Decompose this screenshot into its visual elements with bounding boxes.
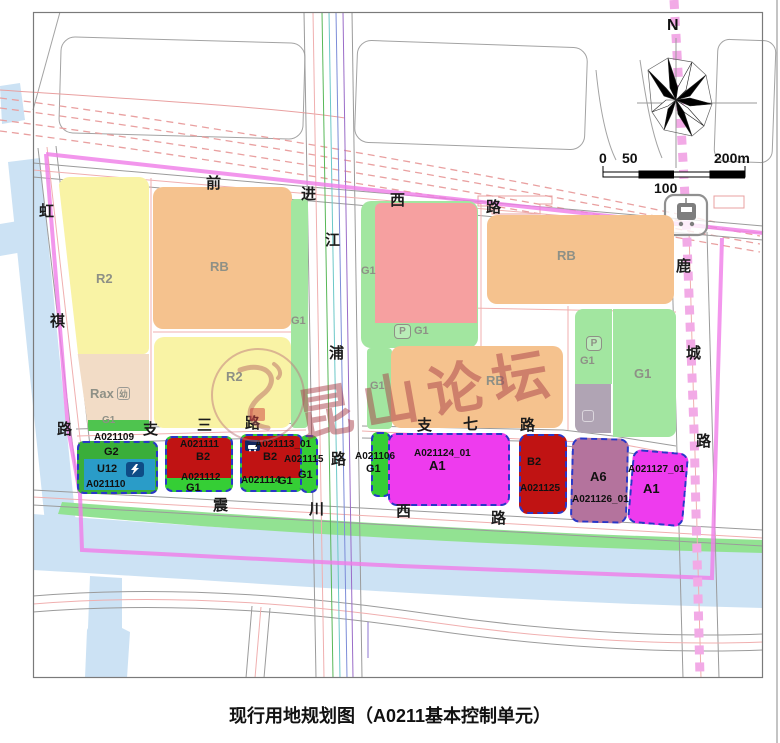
road-label-hongqi: 虹 bbox=[39, 204, 54, 219]
parcel-rax-g1-strip bbox=[88, 420, 149, 431]
parcel-use-label: B2 bbox=[196, 452, 210, 463]
parcel-code: A021114 bbox=[241, 476, 281, 486]
parcel-use-label: A1 bbox=[643, 482, 660, 495]
map-title: 现行用地规划图（A0211基本控制单元） bbox=[0, 702, 780, 728]
parking-icon: P bbox=[586, 336, 602, 351]
road-label-lucheng: 鹿 bbox=[676, 259, 691, 274]
parcel-use-label: G1 bbox=[370, 381, 385, 392]
scale-tick-200m: 200m bbox=[714, 151, 750, 165]
parcel-code: A021125 bbox=[520, 484, 560, 494]
road-label-zhisan: 路 bbox=[245, 416, 260, 431]
parcel-salmon-inner bbox=[375, 203, 477, 323]
scale-bar bbox=[603, 166, 745, 179]
parcel-use-label: R2 bbox=[226, 370, 243, 383]
road-label-hongqi: 路 bbox=[57, 422, 72, 437]
scale-tick-0: 0 bbox=[599, 151, 607, 165]
road-label-hongqi: 祺 bbox=[50, 314, 65, 329]
parcel-use-label: G1 bbox=[102, 416, 115, 426]
parcel-b2-a021125 bbox=[519, 434, 567, 514]
road-label-zhenchuan: 西 bbox=[396, 504, 411, 519]
parcel-code: A021109 bbox=[94, 433, 134, 443]
power-substation-icon bbox=[126, 462, 144, 477]
parcel-a1-a021124 bbox=[388, 433, 510, 506]
road-label-lucheng: 城 bbox=[686, 346, 701, 361]
kindergarten-icon: 幼 bbox=[117, 387, 130, 400]
parcel-use-label: G1 bbox=[278, 476, 293, 487]
road-label-qianjin: 西 bbox=[390, 193, 405, 208]
parcel-use-label: Rax bbox=[90, 387, 114, 400]
land-use-planning-map: P P 幼 A021109 A021110 A021111 A021112 A0… bbox=[0, 0, 780, 743]
parcel-code: A021111 bbox=[180, 440, 219, 450]
road-label-jiangpu: 江 bbox=[325, 233, 340, 248]
parcel-code: A021110 bbox=[86, 480, 126, 490]
parcel-gray-mauve bbox=[575, 384, 611, 433]
parcel-use-label: G2 bbox=[104, 447, 119, 458]
parcel-r2-southwest bbox=[154, 337, 291, 428]
road-label-qianjin: 进 bbox=[301, 187, 316, 202]
parcel-use-label: RB bbox=[557, 249, 576, 262]
road-label-zhenchuan: 川 bbox=[309, 502, 324, 517]
parcel-use-label: U12 bbox=[97, 464, 117, 475]
road-label-qianjin: 路 bbox=[486, 200, 501, 215]
parcel-use-label: G1 bbox=[291, 316, 306, 327]
parcel-use-label: G1 bbox=[580, 356, 595, 367]
parcel-use-label: G1 bbox=[634, 367, 651, 380]
road-label-zhisan: 支 bbox=[143, 422, 158, 437]
parcel-code: A021106 bbox=[355, 452, 395, 462]
parcel-use-label: G1 bbox=[361, 266, 376, 277]
parcel-use-label: A1 bbox=[429, 459, 446, 472]
road-label-jiangpu: 浦 bbox=[329, 346, 344, 361]
road-label-zhenchuan: 震 bbox=[213, 498, 228, 513]
parcel-code: A021113_01 bbox=[255, 440, 311, 450]
facility-icon bbox=[582, 410, 594, 422]
parcel-use-label: G1 bbox=[186, 483, 201, 494]
parcel-use-label: G1 bbox=[298, 470, 313, 481]
road-label-zhenchuan: 路 bbox=[491, 511, 506, 526]
road-label-zhiqi: 路 bbox=[520, 418, 535, 433]
parcel-use-label: RB bbox=[486, 374, 505, 387]
parcel-rb-northeast bbox=[487, 215, 674, 304]
road-label-zhiqi: 支 bbox=[417, 418, 432, 433]
parcel-use-label: B2 bbox=[527, 457, 541, 468]
scale-tick-50: 50 bbox=[622, 151, 638, 165]
parcel-code: A021126_01 bbox=[572, 495, 629, 505]
road-label-qianjin: 前 bbox=[206, 176, 221, 191]
road-label-zhisan: 三 bbox=[197, 418, 212, 433]
parcel-use-label: G1 bbox=[414, 326, 429, 337]
road-label-lucheng: 路 bbox=[696, 434, 711, 449]
scale-tick-100: 100 bbox=[654, 181, 677, 195]
parcel-use-label: R2 bbox=[96, 272, 113, 285]
parcel-use-label: G1 bbox=[366, 464, 381, 475]
parcel-code: A021127_01 bbox=[628, 465, 685, 475]
parking-icon: P bbox=[394, 324, 411, 339]
north-label: N bbox=[667, 18, 679, 34]
road-label-zhiqi: 七 bbox=[463, 417, 478, 432]
parcel-rb-northwest bbox=[153, 187, 292, 329]
parcel-use-label: RB bbox=[210, 260, 229, 273]
parcel-use-label: A6 bbox=[590, 470, 607, 483]
parcel-use-label: B2 bbox=[263, 452, 277, 463]
parcel-code: A021115 bbox=[284, 455, 324, 465]
parcel-g1-west-strip bbox=[291, 199, 308, 428]
road-label-jiangpu: 路 bbox=[331, 452, 346, 467]
